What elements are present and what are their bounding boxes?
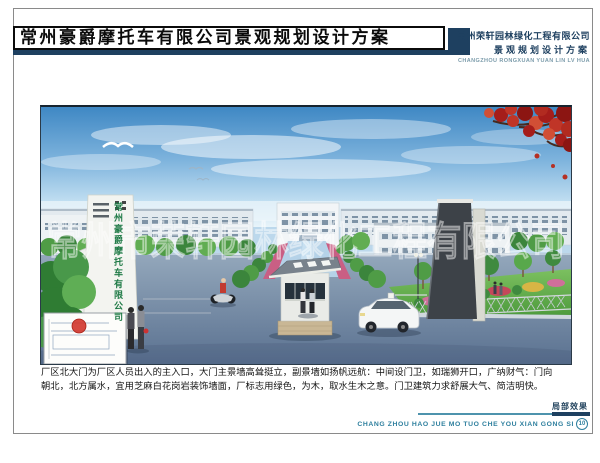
company-romanized: CHANGZHOU RONGXUAN YUAN LIN LV HUA (457, 58, 590, 64)
title-underline-bar (13, 50, 470, 55)
footer-romanized-text: CHANG ZHOU HAO JUE MO TUO CHE YOU XIAN G… (357, 421, 574, 428)
description-paragraph: 厂区北大门为厂区人员出入的主入口，大门主景墙高耸挺立，副景墙如扬帆远航：中间设门… (41, 366, 571, 393)
page-number-badge: 10 (576, 418, 588, 430)
company-block: 常州荣轩园林绿化工程有限公司 景观规划设计方案 CHANGZHOU RONGXU… (457, 29, 590, 64)
footer-romanized-row: CHANG ZHOU HAO JUE MO TUO CHE YOU XIAN G… (357, 418, 588, 430)
footer-rule-accent (552, 412, 590, 416)
page-title: 常州豪爵摩托车有限公司景观规划设计方案 (13, 26, 445, 50)
rendering-photo: 常州市荣轩园林绿化工程有限公司 常州豪爵摩托车有限公司 (40, 105, 572, 365)
description-line-2: 朝北，北方属水，宜用芝麻白花岗岩装饰墙面，厂标志用绿色，为木，取水生木之意。门卫… (41, 380, 571, 394)
company-name: 常州荣轩园林绿化工程有限公司 (457, 29, 590, 42)
description-line-1: 厂区北大门为厂区人员出入的主入口，大门主景墙高耸挺立，副景墙如扬帆远航：中间设门… (41, 366, 571, 380)
company-subtitle: 景观规划设计方案 (457, 43, 590, 56)
gate-sign-vertical-text: 常州豪爵摩托车有限公司 (112, 202, 125, 328)
design-board-page: 常州豪爵摩托车有限公司景观规划设计方案 常州荣轩园林绿化工程有限公司 景观规划设… (0, 0, 600, 463)
view-label: 局部效果 (552, 401, 588, 412)
footer-rule (418, 412, 590, 416)
